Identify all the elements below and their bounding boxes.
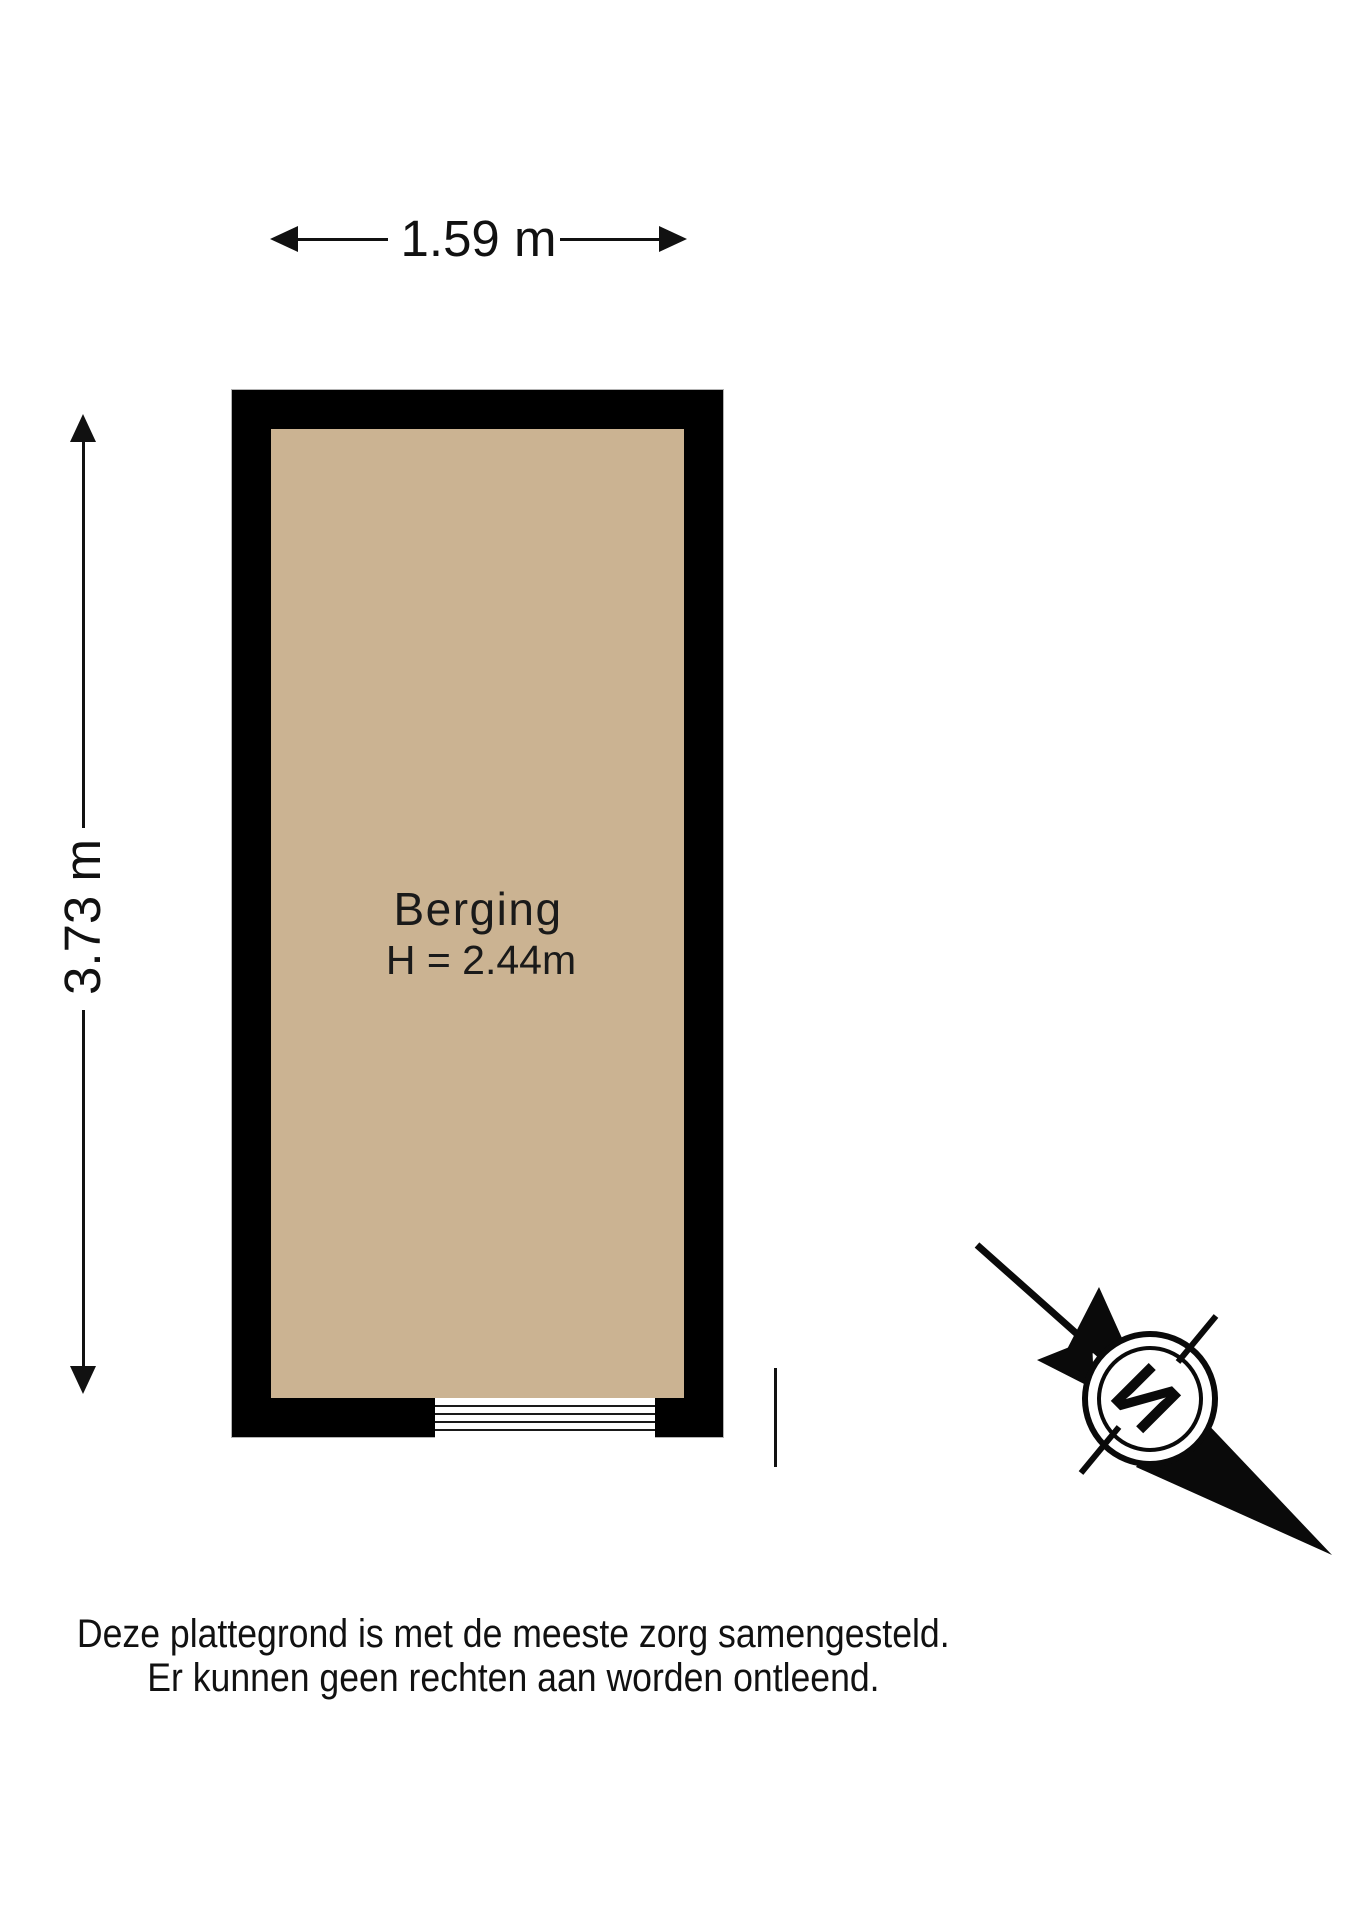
floorplan-canvas: 1.59 m 3.73 m Berging H = 2.44m N bbox=[0, 0, 1358, 1920]
door-sill-line bbox=[435, 1429, 655, 1431]
height-dimension-line-bottom bbox=[82, 1010, 85, 1368]
door-center-line bbox=[774, 1368, 777, 1467]
door-sill-line bbox=[435, 1413, 655, 1415]
room-name-label: Berging bbox=[278, 886, 678, 932]
door-sill-line bbox=[435, 1421, 655, 1423]
disclaimer: Deze plattegrond is met de meeste zorg s… bbox=[18, 1612, 1008, 1700]
width-dimension-label: 1.59 m bbox=[380, 214, 577, 264]
height-dimension-label: 3.73 m bbox=[58, 818, 108, 1016]
door-opening bbox=[435, 1398, 655, 1439]
arrow-left-icon bbox=[270, 226, 298, 252]
arrow-right-icon bbox=[659, 226, 687, 252]
disclaimer-line-2: Er kunnen geen rechten aan worden ontlee… bbox=[147, 1656, 879, 1700]
disclaimer-line-1: Deze plattegrond is met de meeste zorg s… bbox=[77, 1612, 950, 1656]
arrow-down-icon bbox=[70, 1366, 96, 1394]
north-arrow-icon: N bbox=[960, 1230, 1350, 1570]
height-dimension-line-top bbox=[82, 440, 85, 828]
arrow-up-icon bbox=[70, 414, 96, 442]
width-dimension-line-left bbox=[296, 238, 388, 241]
room-ceiling-height-label: H = 2.44m bbox=[281, 938, 681, 982]
door-sill-line bbox=[435, 1405, 655, 1407]
width-dimension-line-right bbox=[560, 238, 661, 241]
